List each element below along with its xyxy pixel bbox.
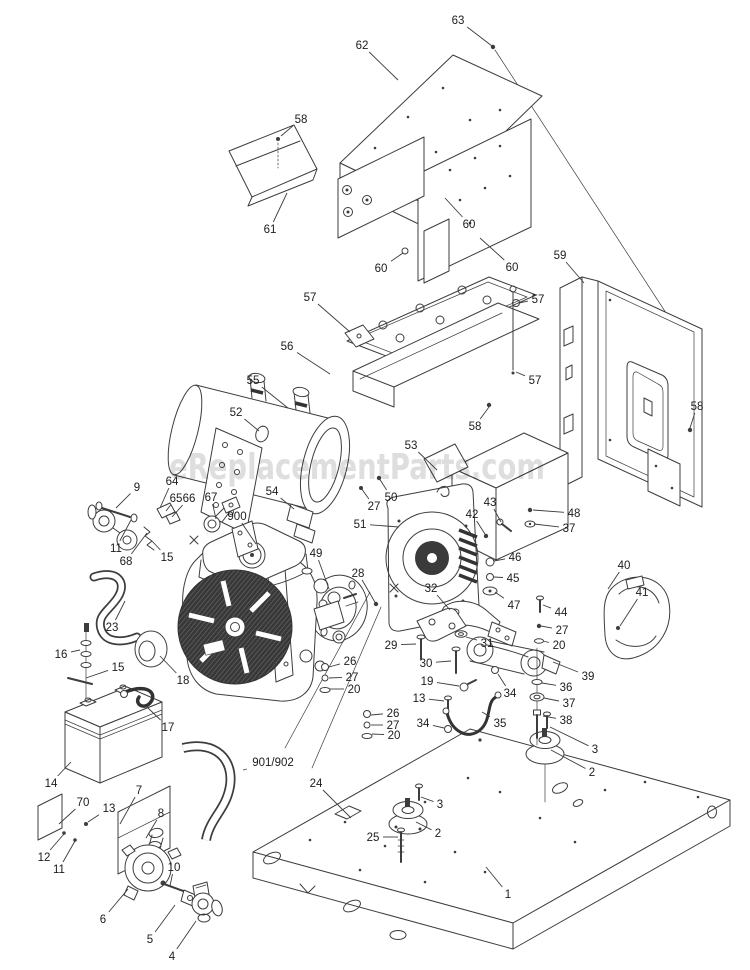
x-mark	[190, 536, 198, 544]
spacer-36	[532, 680, 542, 685]
leader-line	[88, 815, 99, 822]
part-label-15: 15	[112, 662, 125, 674]
leader-line	[433, 725, 444, 728]
part-label-70: 70	[77, 797, 90, 809]
part-label-9: 9	[134, 482, 140, 494]
nut-45	[487, 574, 494, 581]
leader-line	[543, 641, 549, 643]
part-label-60: 60	[506, 262, 519, 274]
part-label-43: 43	[484, 497, 497, 509]
part-label-47: 47	[508, 600, 521, 612]
part-label-36: 36	[560, 682, 573, 694]
nut-34	[445, 726, 452, 733]
part-label-55: 55	[247, 375, 260, 387]
part-label-16: 16	[55, 649, 68, 661]
leader-line	[170, 874, 173, 886]
part-label-34: 34	[417, 718, 430, 730]
part-label-3: 3	[437, 799, 443, 811]
pipe-8	[148, 827, 163, 838]
part-label-25: 25	[367, 832, 380, 844]
bolt-16	[84, 623, 89, 632]
part-label-42: 42	[466, 509, 479, 521]
part-label-57: 57	[529, 375, 542, 387]
part-label-28: 28	[352, 568, 365, 580]
part-heat-shield-61	[229, 125, 317, 206]
leader-line	[152, 541, 160, 550]
part-label-23: 23	[106, 622, 119, 634]
part-label-18: 18	[177, 675, 190, 687]
part-label-31: 31	[481, 638, 494, 650]
part-label-58: 58	[295, 114, 308, 126]
part-label-51: 51	[354, 519, 367, 531]
leader-line	[109, 889, 128, 912]
part-label-12: 12	[38, 852, 51, 864]
part-label-39: 39	[582, 671, 595, 683]
part-label-40: 40	[618, 560, 631, 572]
screw-58	[276, 137, 280, 141]
part-label-7: 7	[136, 785, 142, 797]
part-label-53: 53	[405, 440, 418, 452]
leader-line	[543, 605, 551, 608]
part-engine-900	[178, 523, 358, 701]
part-label-13: 13	[413, 693, 426, 705]
leader-line	[273, 193, 287, 222]
part-label-59: 59	[554, 250, 567, 262]
leader-line	[369, 52, 398, 80]
screw-42	[484, 534, 488, 538]
part-label-29: 29	[385, 640, 398, 652]
part-label-11: 11	[110, 543, 122, 555]
screw-41	[616, 626, 620, 630]
part-label-58: 58	[691, 401, 704, 413]
part-label-27: 27	[368, 501, 381, 513]
leader-line	[391, 253, 403, 261]
leader-line	[116, 494, 131, 509]
part-label-2: 2	[435, 828, 441, 840]
part-base-plate-1	[253, 729, 730, 949]
part-label-54: 54	[266, 486, 279, 498]
part-label-26: 26	[387, 708, 400, 720]
part-label-14: 14	[45, 778, 58, 790]
part-shelf-57-56	[345, 277, 539, 407]
leader-line	[243, 769, 247, 770]
leader-line	[542, 683, 556, 685]
part-label-57: 57	[532, 294, 545, 306]
leader-line	[566, 262, 584, 283]
leader-line	[467, 27, 492, 46]
part-label-5: 5	[147, 934, 153, 946]
part-label-26: 26	[344, 656, 357, 668]
leader-line	[544, 698, 559, 701]
part-label-15: 15	[161, 552, 174, 564]
part-label-41: 41	[636, 587, 649, 599]
part-label-24: 24	[310, 778, 323, 790]
part-label-63: 63	[452, 15, 465, 27]
watermark-text: eReplacementParts.com	[169, 447, 545, 488]
part-label-27: 27	[556, 625, 569, 637]
part-label-17: 17	[162, 722, 175, 734]
part-label-37: 37	[563, 523, 576, 535]
part-label-50: 50	[385, 492, 398, 504]
leader-line	[318, 304, 350, 332]
part-label-68: 68	[120, 556, 133, 568]
part-label-2: 2	[589, 767, 595, 779]
part-label-58: 58	[469, 421, 482, 433]
part-label-65: 65	[170, 493, 183, 505]
part-bushing-18	[135, 631, 167, 667]
washer-37	[530, 693, 544, 701]
part-label-6: 6	[100, 914, 106, 926]
part-label-62: 62	[356, 40, 369, 52]
leader-line	[437, 683, 459, 686]
part-label-60: 60	[463, 219, 476, 231]
leader-line	[516, 372, 525, 376]
leader-line	[160, 656, 176, 673]
part-label-27: 27	[346, 672, 359, 684]
leader-line	[436, 661, 451, 662]
part-label-49: 49	[310, 548, 323, 560]
part-label-13: 13	[103, 803, 116, 815]
part-label-901/902: 901/902	[252, 757, 294, 769]
leader-line	[63, 841, 75, 862]
part-label-11: 11	[53, 864, 65, 876]
part-label-48: 48	[568, 508, 581, 520]
part-label-46: 46	[509, 552, 522, 564]
leader-line	[543, 716, 556, 718]
part-label-61: 61	[264, 224, 277, 236]
leader-line	[71, 650, 80, 652]
part-label-900: 900	[227, 511, 246, 523]
part-label-8: 8	[158, 808, 164, 820]
part-hose-901-902	[183, 746, 231, 840]
washer-11	[131, 514, 137, 522]
part-label-20: 20	[348, 684, 361, 696]
part-label-3: 3	[592, 744, 598, 756]
leader-line	[372, 734, 384, 735]
leader-line	[371, 714, 383, 715]
leader-line	[401, 644, 416, 645]
leader-line	[429, 699, 444, 701]
spring-68	[144, 527, 154, 550]
leader-line	[86, 670, 108, 678]
nut-46	[486, 558, 494, 566]
part-label-34: 34	[504, 688, 517, 700]
part-label-66: 66	[183, 493, 196, 505]
part-label-60: 60	[375, 263, 388, 275]
exploded-view-diagram: eReplacementParts.com 636258616060605957…	[0, 0, 750, 970]
part-label-20: 20	[553, 640, 566, 652]
nut-34	[492, 667, 499, 674]
leader-line	[498, 674, 506, 686]
leader-line	[50, 834, 64, 850]
bolt-15	[68, 678, 92, 684]
leader-line	[495, 592, 504, 598]
leader-line	[177, 921, 196, 949]
part-label-38: 38	[560, 715, 573, 727]
part-label-32: 32	[425, 583, 438, 595]
leader-line	[155, 905, 175, 932]
leader-line	[494, 577, 503, 578]
screw-58	[688, 428, 692, 432]
terminal-19	[460, 683, 468, 691]
part-label-10: 10	[168, 862, 181, 874]
breather-67	[204, 516, 220, 532]
part-label-64: 64	[166, 476, 179, 488]
leader-line	[120, 797, 135, 824]
bolt-10	[164, 884, 186, 892]
screw-58	[487, 403, 491, 407]
leader-line	[480, 407, 489, 419]
part-label-57: 57	[304, 292, 317, 304]
part-fuel-group	[38, 786, 224, 922]
parts-diagram-canvas: eReplacementParts.com 636258616060605957…	[0, 0, 750, 970]
part-label-56: 56	[281, 341, 294, 353]
part-label-52: 52	[230, 407, 243, 419]
part-label-4: 4	[169, 951, 176, 963]
part-label-45: 45	[507, 573, 520, 585]
leader-line	[541, 626, 552, 628]
solenoid-4	[192, 893, 214, 915]
leader-line	[361, 488, 369, 499]
leader-line	[297, 353, 330, 375]
part-door-panel-59	[560, 277, 702, 507]
part-label-37: 37	[563, 698, 576, 710]
part-label-19: 19	[421, 676, 434, 688]
part-label-20: 20	[388, 730, 401, 742]
part-label-30: 30	[420, 658, 433, 670]
leader-line	[329, 677, 342, 678]
plate-70	[38, 794, 62, 840]
part-label-35: 35	[494, 718, 507, 730]
washer-31	[455, 631, 467, 637]
part-label-44: 44	[555, 607, 568, 619]
part-label-1: 1	[505, 889, 511, 901]
part-label-67: 67	[205, 492, 218, 504]
screw-48	[528, 508, 532, 512]
